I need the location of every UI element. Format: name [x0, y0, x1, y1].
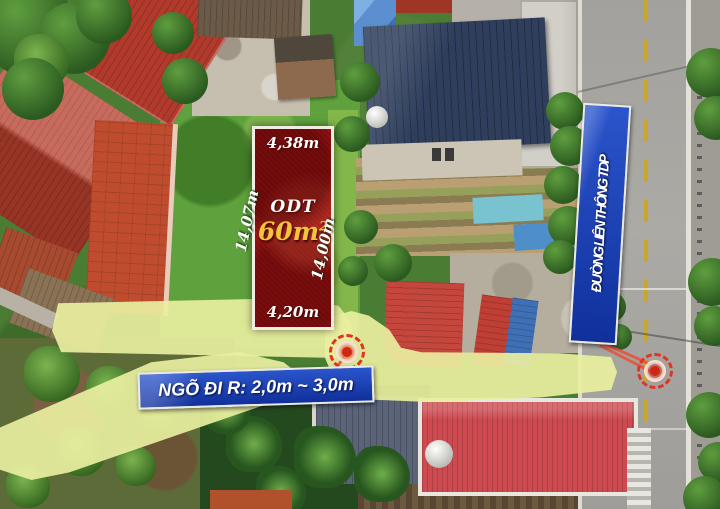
water-tank-bottom: [425, 440, 453, 468]
plot-dim-top: 4,38m: [255, 134, 331, 152]
alley-width-banner-text: NGÕ ĐI R: 2,0m ~ 3,0m: [158, 374, 354, 401]
palm-tree: [24, 346, 80, 402]
red-brick-bottom: [210, 490, 292, 509]
aerial-photo-scene: 4,38m ODT 60m2 4,20m 14,07m 14,00m NGÕ Đ…: [0, 0, 720, 509]
white-fence-strip: [627, 428, 651, 509]
orange-tile-roof-long: [85, 120, 178, 316]
plot-area-value: 60m: [258, 217, 319, 246]
road-name-sign-text: ĐƯỜNG LIÊN THÔNG TDP: [589, 156, 611, 293]
tree-canopy: [338, 256, 368, 286]
alley-entrance-target-icon: [329, 334, 365, 370]
hedge-by-road: [543, 240, 577, 274]
road-connection-target-icon: [637, 353, 673, 389]
brick-outbuilding: [274, 34, 336, 100]
marker-center-dot: [342, 347, 352, 357]
old-dark-tile-roof: [197, 0, 303, 40]
marker-center-dot: [650, 366, 660, 376]
alley-width-banner: NGÕ ĐI R: 2,0m ~ 3,0m: [137, 365, 374, 409]
wall-window-2: [445, 148, 454, 161]
wall-window-1: [432, 148, 441, 161]
hedge-by-road: [546, 92, 584, 130]
plot-land-type: ODT: [255, 197, 331, 217]
tree-canopy: [162, 58, 208, 104]
tree-canopy: [334, 116, 370, 152]
navy-metal-roof-building: [363, 17, 551, 152]
tree-canopy: [152, 12, 194, 54]
garden-bush: [374, 244, 412, 282]
concrete-wall-below-navy: [361, 139, 522, 181]
tree-canopy: [340, 62, 380, 102]
tree-canopy: [344, 210, 378, 244]
teal-tarp-garden: [472, 194, 543, 224]
hedge-by-road: [544, 166, 582, 204]
water-tank-navy-roof: [366, 106, 388, 128]
plot-dim-bottom: 4,20m: [255, 303, 331, 321]
tree-canopy: [2, 58, 64, 120]
